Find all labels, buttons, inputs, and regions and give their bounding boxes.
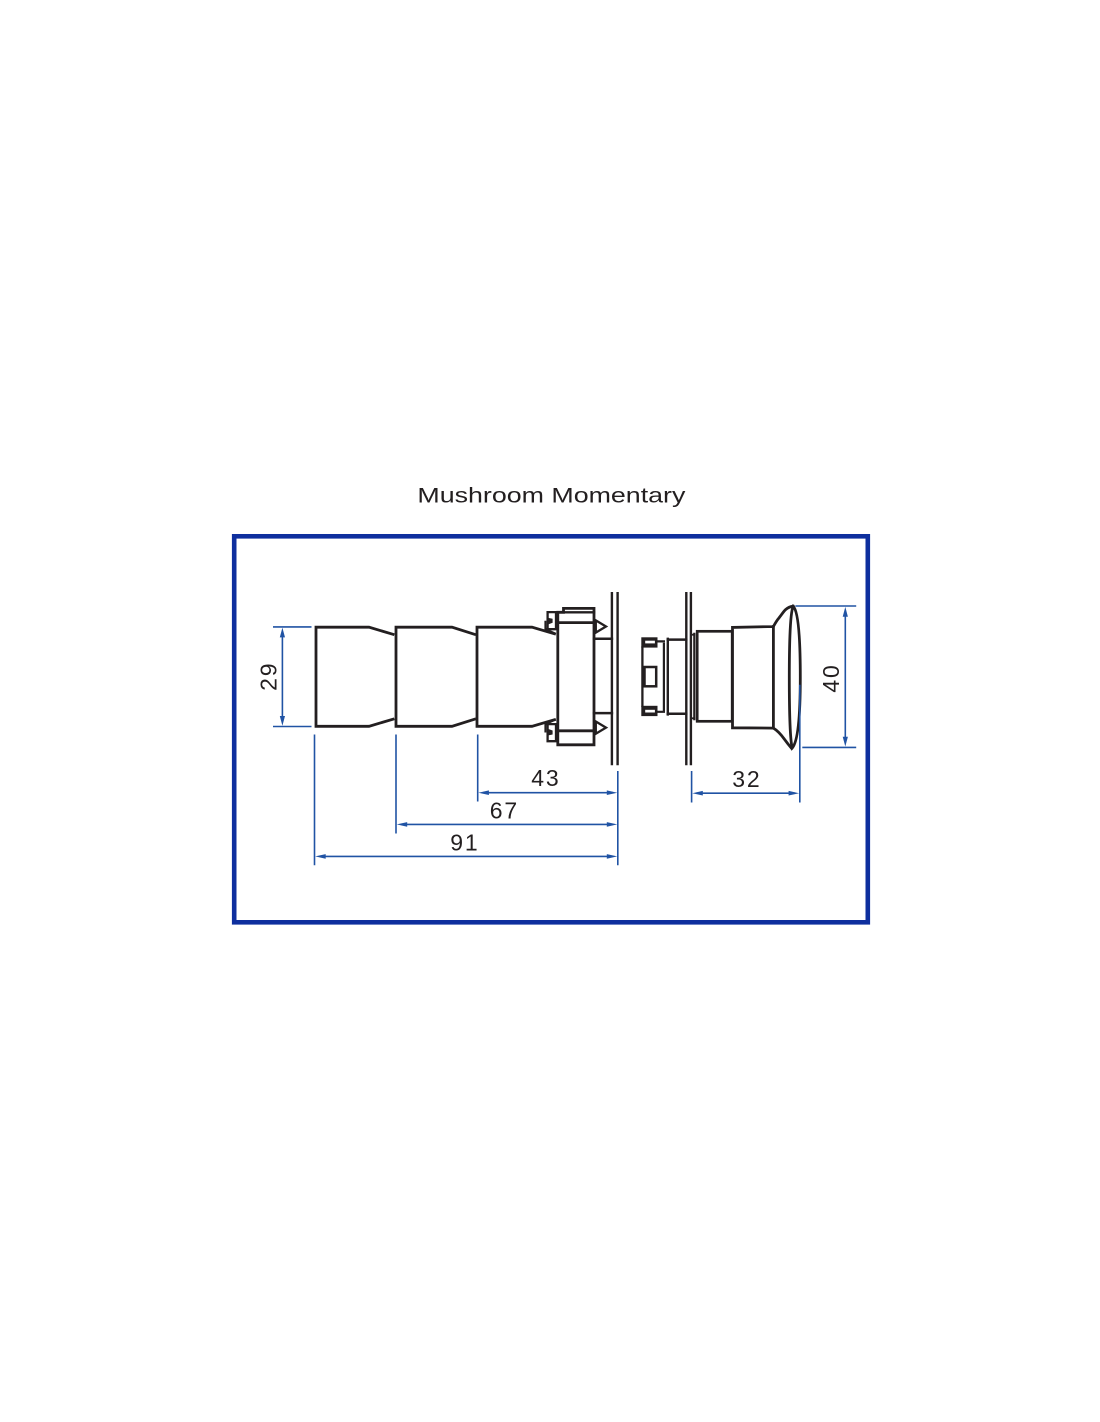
svg-text:40: 40 — [818, 663, 844, 692]
svg-text:67: 67 — [490, 797, 519, 823]
svg-text:29: 29 — [255, 662, 281, 691]
svg-text:43: 43 — [531, 765, 560, 791]
svg-text:91: 91 — [450, 829, 479, 855]
svg-text:Mushroom Momentary: Mushroom Momentary — [417, 482, 685, 507]
svg-text:32: 32 — [732, 766, 761, 792]
